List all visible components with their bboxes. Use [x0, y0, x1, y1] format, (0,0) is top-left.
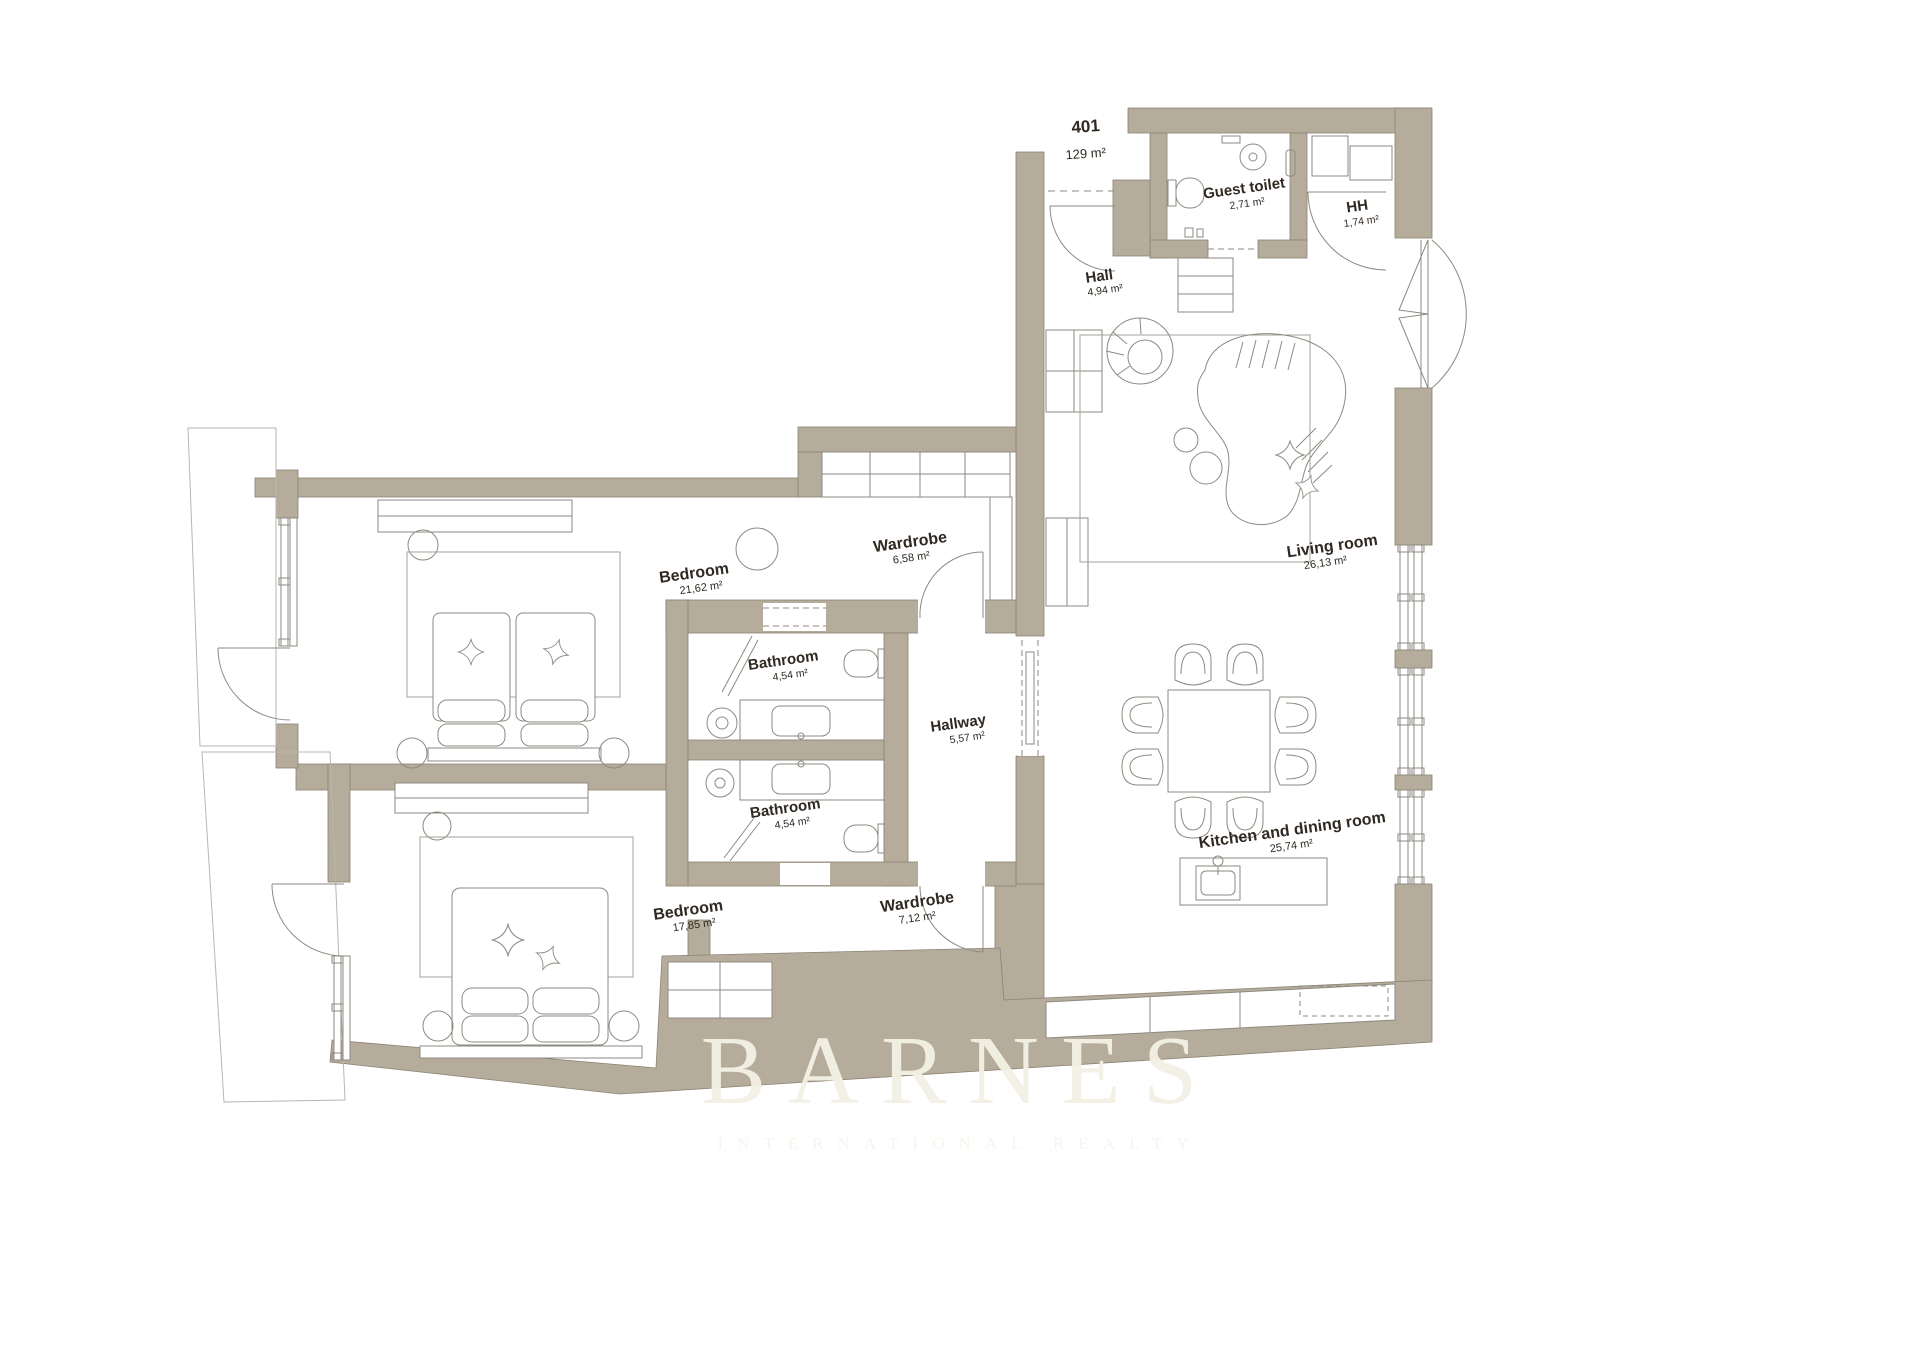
- armchair: [1106, 318, 1173, 384]
- bedroom1-balcony-door: [218, 648, 290, 720]
- label-bathroom-2: Bathroom 4,54 m²: [749, 795, 823, 835]
- sofa: [1197, 334, 1345, 525]
- walls: [255, 108, 1432, 1094]
- label-bedroom-2: Bedroom 17,85 m²: [652, 897, 726, 936]
- kitchen-island: [1180, 856, 1327, 905]
- balcony-outline-upper: [188, 428, 276, 746]
- label-bathroom-1: Bathroom 4,54 m²: [747, 647, 821, 687]
- bedroom2-balcony-door: [272, 884, 344, 956]
- floor-plan-drawing: 401 129 m² Guest toilet 2,71 m² HH 1,74 …: [0, 0, 1920, 1357]
- window-kitchen-upper: [1398, 668, 1424, 775]
- french-door: [1399, 240, 1466, 388]
- wardrobe1-closets: [736, 452, 1012, 600]
- bedroom1-furniture: [378, 500, 629, 768]
- unit-area: 129 m²: [1065, 145, 1107, 163]
- svg-text:HH: HH: [1345, 197, 1369, 217]
- guest-toilet-outside-cabinet: [1178, 258, 1233, 312]
- label-guest-toilet: Guest toilet 2,71 m²: [1202, 174, 1288, 215]
- balcony-outline-lower: [202, 752, 345, 1102]
- label-hall: Hall 4,94 m²: [1084, 265, 1124, 299]
- label-wardrobe-2: Wardrobe 7,12 m²: [879, 889, 957, 929]
- unit-number: 401: [1071, 116, 1101, 137]
- bedroom2-window: [332, 956, 350, 1060]
- dining-table: [1168, 690, 1270, 792]
- label-wardrobe-1: Wardrobe 6,58 m²: [872, 529, 950, 569]
- unit-label: 401 129 m²: [1065, 116, 1107, 162]
- label-kitchen-dining: Kitchen and dining room 25,74 m²: [1198, 809, 1389, 865]
- label-bedroom-1: Bedroom 21,62 m²: [658, 560, 732, 599]
- window-kitchen-lower: [1398, 790, 1424, 884]
- side-tables: [1174, 428, 1222, 484]
- bedroom1-window: [279, 518, 297, 646]
- floor-plan-page: 401 129 m² Guest toilet 2,71 m² HH 1,74 …: [0, 0, 1920, 1357]
- label-hallway: Hallway 5,57 m²: [929, 711, 989, 749]
- entrance-door: [1048, 191, 1115, 271]
- bedroom2-furniture: [395, 783, 642, 1058]
- hall-closet: [1046, 330, 1102, 606]
- label-living-room: Living room 26,13 m²: [1286, 532, 1381, 574]
- wardrobe2-closet: [668, 962, 772, 1018]
- window-living: [1398, 545, 1424, 650]
- label-hh: HH 1,74 m²: [1340, 195, 1380, 230]
